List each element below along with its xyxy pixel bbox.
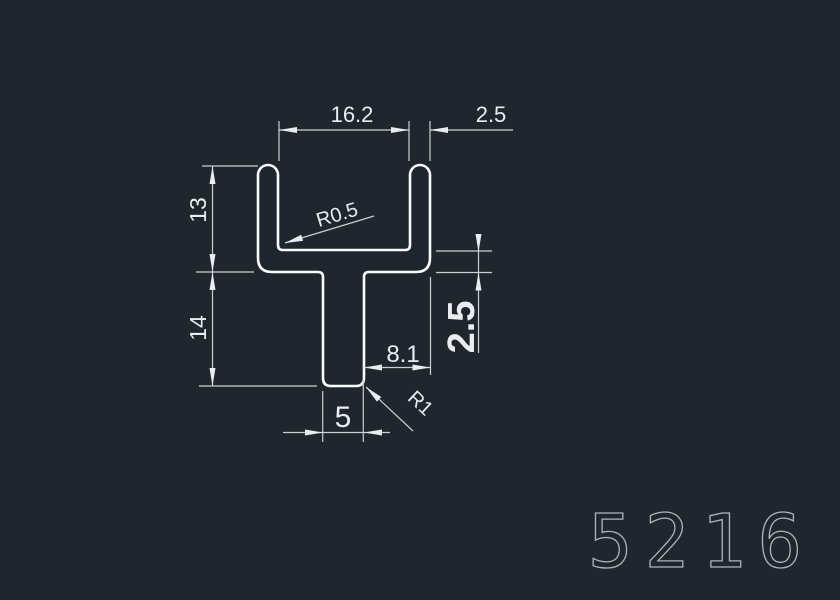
dim-stem-width: 5 [335,401,352,434]
arrowhead [279,127,297,133]
profile-drawing: 16.2 2.5 13 14 2.5 8.1 5 R0.5 R1 5216 [0,0,840,600]
arrowhead [364,365,382,371]
dim-channel-depth: 13 [185,197,211,223]
dim-stem-depth: 14 [185,315,211,341]
arrowhead [391,127,409,133]
arrowhead [364,430,382,436]
arrowhead [476,273,482,291]
arrowhead [430,127,448,133]
dim-stem-to-edge: 8.1 [386,341,419,368]
dim-leg-thickness: 2.5 [476,102,507,127]
cad-drawing-canvas[interactable]: 16.2 2.5 13 14 2.5 8.1 5 R0.5 R1 5216 [0,0,840,600]
arrowhead [305,430,323,436]
arrowhead [210,368,216,386]
extension-lines [196,121,492,442]
dim-channel-inner-width: 16.2 [331,102,374,127]
arrowheads [210,127,482,436]
dim-web-thickness: 2.5 [441,301,483,354]
arrowhead [210,254,216,272]
arrowhead [285,235,303,243]
arrowhead [476,234,482,252]
arrowhead [210,272,216,290]
arrowhead [210,166,216,184]
part-number: 5216 [588,499,814,585]
dim-stem-corner-radius: R1 [403,387,437,421]
